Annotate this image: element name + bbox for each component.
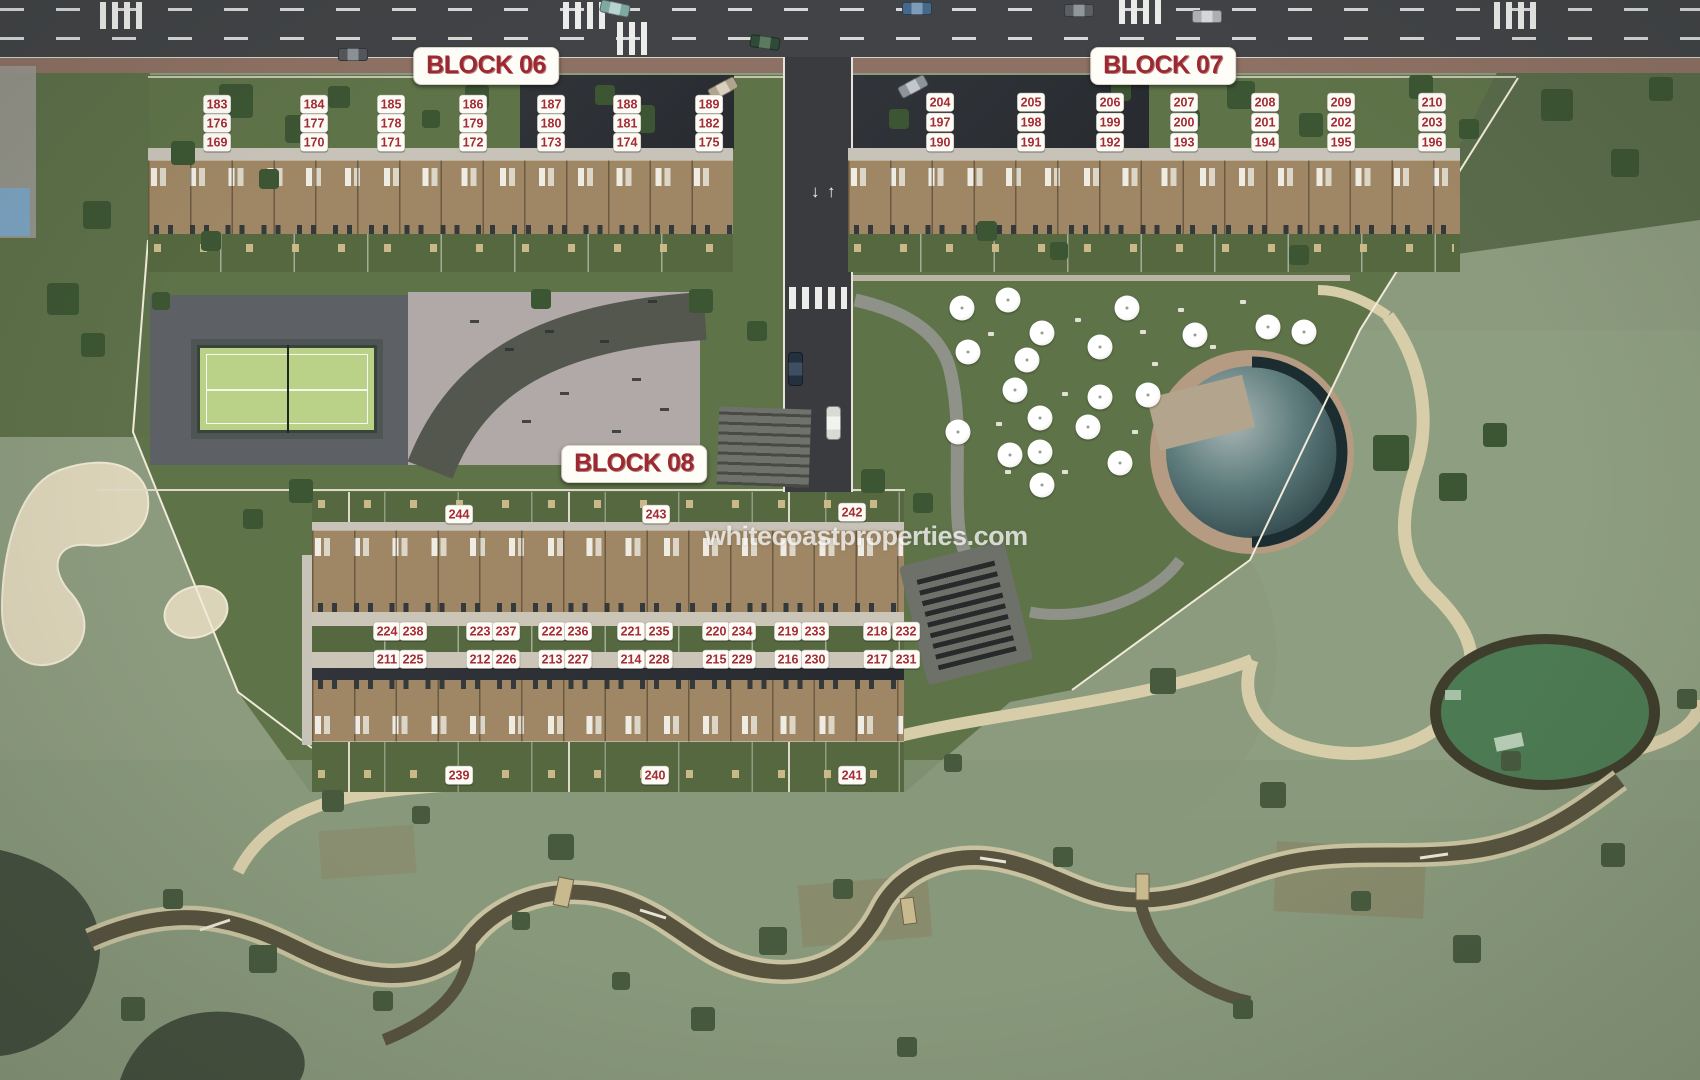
unit-label-180: 180 [538, 114, 565, 132]
unit-label-179: 179 [460, 114, 487, 132]
crosswalk [1494, 2, 1536, 29]
car [338, 48, 368, 61]
block08-south-garden [312, 742, 904, 792]
unit-label-225: 225 [400, 650, 427, 668]
umbrella [1028, 406, 1053, 431]
unit-label-214: 214 [618, 650, 645, 668]
unit-label-184: 184 [301, 95, 328, 113]
umbrella [950, 296, 975, 321]
unit-label-201: 201 [1252, 113, 1279, 131]
block-label-block-06: BLOCK 06 [413, 47, 559, 85]
unit-label-208: 208 [1252, 93, 1279, 111]
unit-label-185: 185 [378, 95, 405, 113]
unit-label-212: 212 [467, 650, 494, 668]
umbrella [1030, 473, 1055, 498]
block06-garden [148, 234, 733, 272]
padel-court [197, 345, 377, 433]
block06-building [148, 160, 733, 234]
unit-label-182: 182 [696, 114, 723, 132]
unit-label-243: 243 [643, 505, 670, 523]
umbrella [956, 340, 981, 365]
lane-arrow-down: ↓ [811, 182, 820, 202]
umbrella [1256, 315, 1281, 340]
parked-cars [915, 556, 1016, 670]
block-label-block-08: BLOCK 08 [561, 445, 707, 483]
unit-label-224: 224 [374, 622, 401, 640]
unit-label-187: 187 [538, 95, 565, 113]
unit-label-237: 237 [493, 622, 520, 640]
unit-label-205: 205 [1018, 93, 1045, 111]
umbrella [1028, 440, 1053, 465]
unit-label-192: 192 [1097, 133, 1124, 151]
block07-building [848, 160, 1460, 234]
watermark: whitecoastproperties.com [705, 521, 1028, 552]
umbrella [1108, 451, 1133, 476]
unit-label-229: 229 [729, 650, 756, 668]
unit-label-215: 215 [703, 650, 730, 668]
unit-label-183: 183 [204, 95, 231, 113]
unit-label-211: 211 [374, 650, 400, 668]
unit-label-169: 169 [204, 133, 231, 151]
unit-label-231: 231 [893, 650, 920, 668]
block-label-block-07: BLOCK 07 [1090, 47, 1236, 85]
unit-label-175: 175 [696, 133, 723, 151]
umbrella [996, 288, 1021, 313]
unit-label-223: 223 [467, 622, 494, 640]
car [1064, 4, 1094, 17]
unit-label-222: 222 [539, 622, 566, 640]
unit-label-221: 221 [618, 622, 645, 640]
unit-label-172: 172 [460, 133, 487, 151]
unit-label-193: 193 [1171, 133, 1198, 151]
umbrella [1292, 320, 1317, 345]
unit-label-230: 230 [802, 650, 829, 668]
unit-label-197: 197 [927, 113, 954, 131]
unit-label-219: 219 [775, 622, 802, 640]
unit-label-171: 171 [378, 133, 405, 151]
unit-label-176: 176 [204, 114, 231, 132]
unit-label-240: 240 [642, 766, 669, 784]
umbrella [946, 420, 971, 445]
minibus [788, 352, 803, 386]
umbrella [1136, 383, 1161, 408]
car [902, 2, 932, 15]
block08-north-garden [312, 492, 904, 522]
block08-south-building [312, 680, 904, 742]
unit-label-238: 238 [400, 622, 427, 640]
unit-label-195: 195 [1328, 133, 1355, 151]
unit-label-194: 194 [1252, 133, 1279, 151]
crosswalk [1119, 0, 1161, 24]
umbrella [1115, 296, 1140, 321]
sun-loungers [0, 0, 6, 4]
unit-label-177: 177 [301, 114, 328, 132]
block08-west-terraces [302, 555, 312, 745]
unit-label-196: 196 [1419, 133, 1446, 151]
crosswalk [789, 287, 847, 309]
unit-label-170: 170 [301, 133, 328, 151]
unit-label-228: 228 [646, 650, 673, 668]
crosswalk [100, 2, 142, 29]
unit-label-178: 178 [378, 114, 405, 132]
umbrella [1183, 323, 1208, 348]
unit-label-189: 189 [696, 95, 723, 113]
unit-label-199: 199 [1097, 113, 1124, 131]
unit-label-234: 234 [729, 622, 756, 640]
main-road [0, 0, 1700, 57]
unit-label-174: 174 [614, 133, 641, 151]
block06-building-wall [148, 148, 733, 160]
lane-arrow-up: ↑ [827, 182, 836, 202]
unit-label-204: 204 [927, 93, 954, 111]
umbrella [1015, 348, 1040, 373]
unit-label-235: 235 [646, 622, 673, 640]
masterplan-site-map: ↓ ↑ [0, 0, 1700, 1080]
unit-label-241: 241 [839, 766, 866, 784]
umbrella [1076, 415, 1101, 440]
unit-label-173: 173 [538, 133, 565, 151]
unit-label-226: 226 [493, 650, 520, 668]
lane-line [0, 8, 1700, 11]
unit-label-239: 239 [446, 766, 473, 784]
unit-label-236: 236 [565, 622, 592, 640]
unit-label-186: 186 [460, 95, 487, 113]
block07-garden [848, 234, 1460, 272]
unit-label-202: 202 [1328, 113, 1355, 131]
unit-label-188: 188 [614, 95, 641, 113]
unit-label-218: 218 [864, 622, 891, 640]
unit-label-210: 210 [1419, 93, 1446, 111]
unit-label-206: 206 [1097, 93, 1124, 111]
unit-label-242: 242 [839, 503, 866, 521]
unit-label-200: 200 [1171, 113, 1198, 131]
unit-label-203: 203 [1419, 113, 1446, 131]
unit-label-233: 233 [802, 622, 829, 640]
unit-label-217: 217 [864, 650, 891, 668]
umbrella [1088, 335, 1113, 360]
unit-label-232: 232 [893, 622, 920, 640]
unit-label-209: 209 [1328, 93, 1355, 111]
unit-label-213: 213 [539, 650, 566, 668]
unit-label-244: 244 [446, 505, 473, 523]
unit-label-181: 181 [614, 114, 641, 132]
block08-south-roof [312, 668, 904, 680]
crosswalk [563, 2, 605, 29]
lane-line [0, 37, 1700, 40]
unit-label-190: 190 [927, 133, 954, 151]
parking-strip [717, 406, 812, 487]
unit-label-216: 216 [775, 650, 802, 668]
unit-label-220: 220 [703, 622, 730, 640]
van [826, 406, 841, 440]
umbrella [1030, 321, 1055, 346]
unit-label-191: 191 [1018, 133, 1045, 151]
car [1192, 10, 1222, 23]
west-pool [0, 188, 30, 236]
unit-label-198: 198 [1018, 113, 1045, 131]
umbrella [1088, 385, 1113, 410]
umbrella [1003, 378, 1028, 403]
crosswalk [617, 22, 653, 55]
unit-label-207: 207 [1171, 93, 1198, 111]
unit-label-227: 227 [565, 650, 592, 668]
umbrella [998, 443, 1023, 468]
